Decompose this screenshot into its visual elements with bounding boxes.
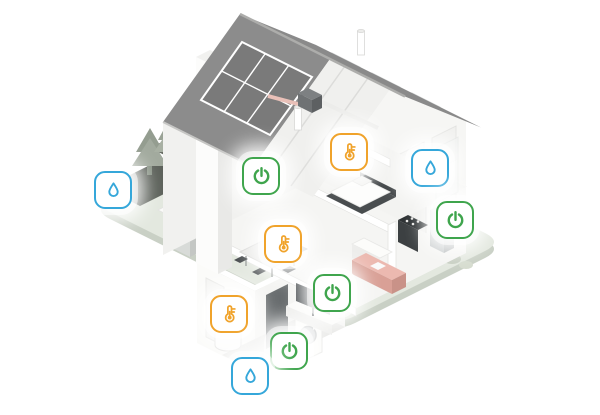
power-icon bbox=[278, 340, 301, 363]
water-sensor-outdoor-button[interactable] bbox=[94, 171, 132, 209]
thermometer-icon bbox=[338, 141, 361, 164]
power-icon bbox=[250, 165, 273, 188]
power-icon bbox=[321, 282, 344, 305]
thermometer-icon bbox=[218, 303, 241, 326]
water-sensor-bathroom-button[interactable] bbox=[411, 149, 449, 187]
droplet-icon bbox=[102, 179, 125, 202]
droplet-icon bbox=[419, 157, 442, 180]
smart-home-illustration bbox=[0, 0, 600, 415]
power-control-basement-button[interactable] bbox=[270, 332, 308, 370]
sensor-icon-layer bbox=[0, 0, 600, 415]
power-control-kitchen-button[interactable] bbox=[436, 201, 474, 239]
thermostat-bedroom-button[interactable] bbox=[330, 133, 368, 171]
power-icon bbox=[444, 209, 467, 232]
thermostat-basement-button[interactable] bbox=[210, 295, 248, 333]
thermometer-icon bbox=[272, 233, 295, 256]
power-control-livingroom-button[interactable] bbox=[313, 274, 351, 312]
thermostat-dining-button[interactable] bbox=[264, 225, 302, 263]
droplet-icon bbox=[239, 365, 262, 388]
water-sensor-basement-button[interactable] bbox=[231, 357, 269, 395]
power-control-office-button[interactable] bbox=[242, 157, 280, 195]
